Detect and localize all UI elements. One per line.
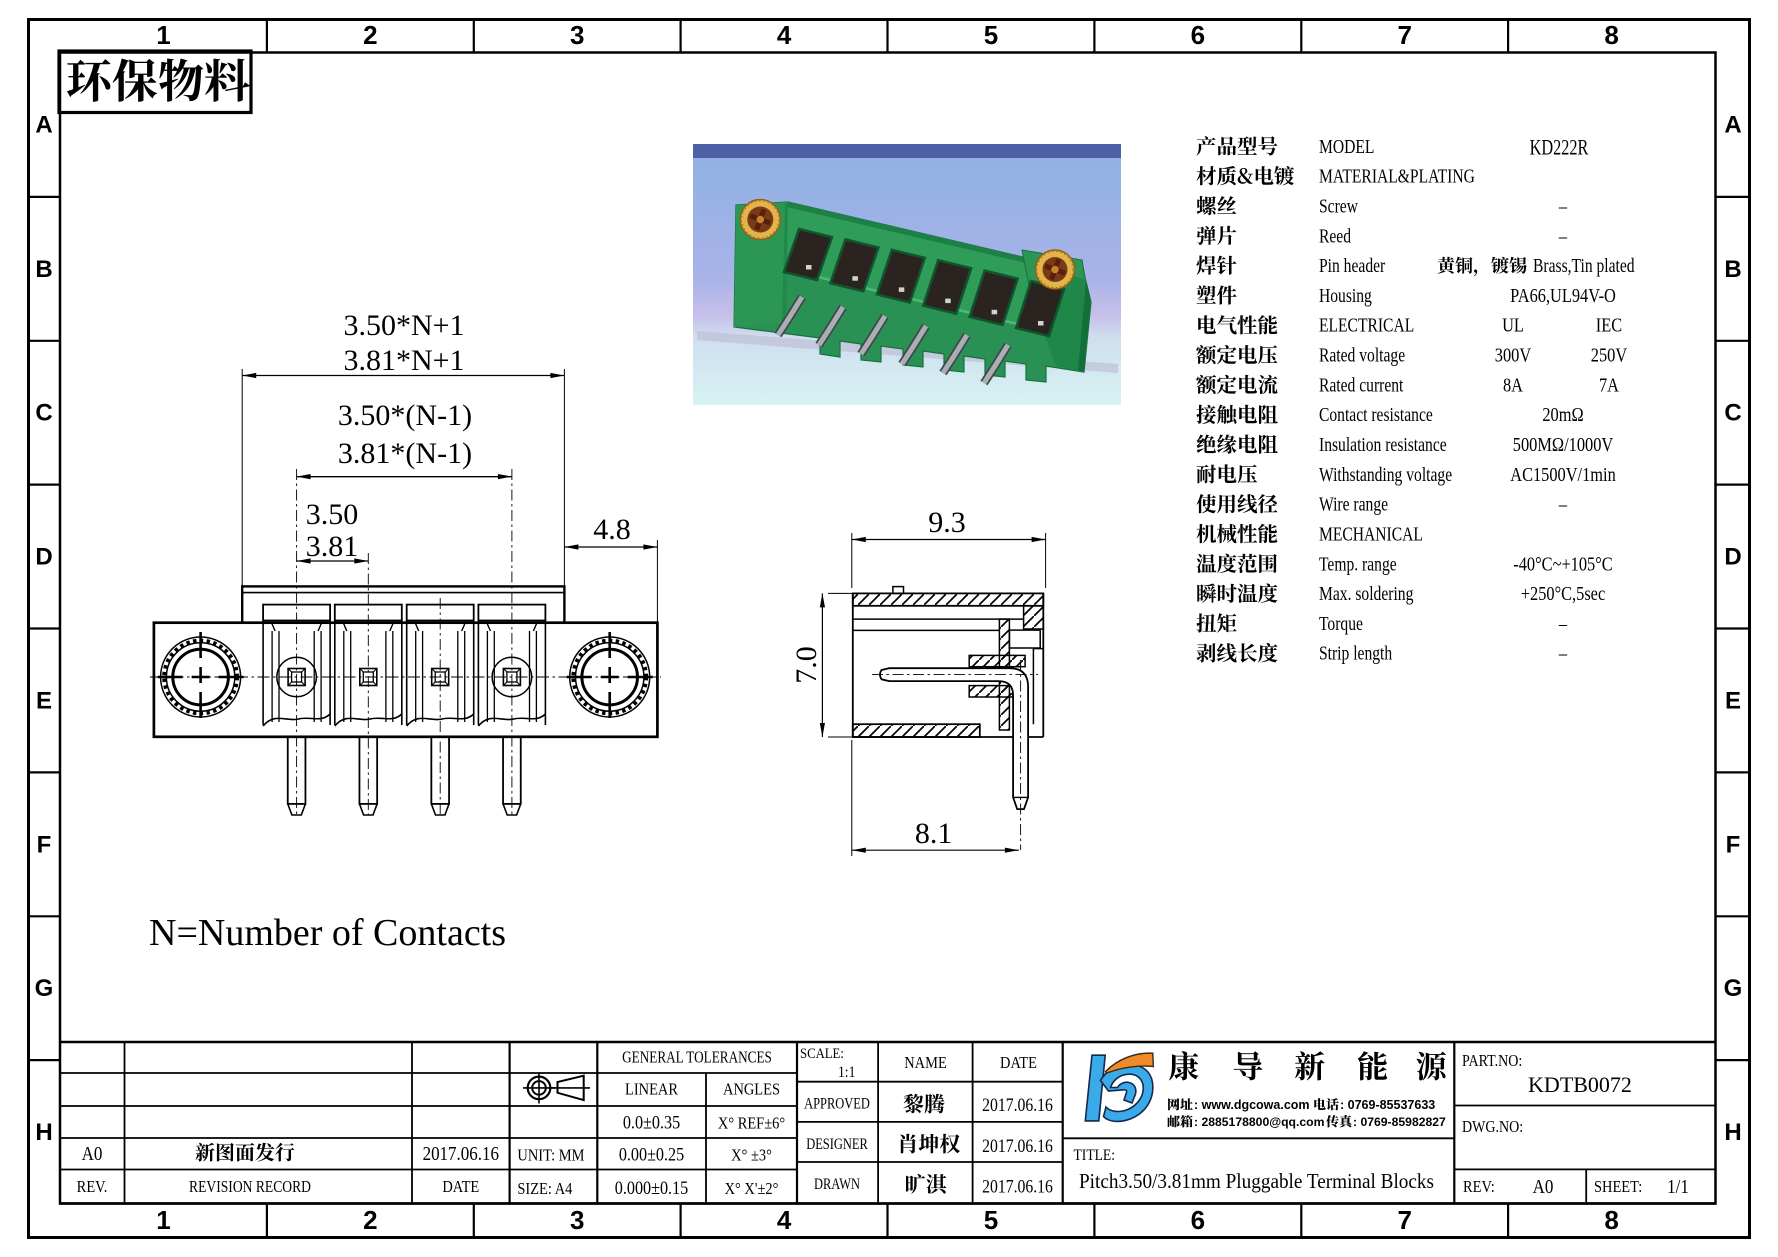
svg-text:C: C xyxy=(1724,400,1741,427)
svg-text:3.50*N+1: 3.50*N+1 xyxy=(343,309,464,342)
svg-text:0.00±0.25: 0.00±0.25 xyxy=(619,1143,685,1165)
svg-text:Rated current: Rated current xyxy=(1319,374,1403,396)
svg-text:+250°C,5sec: +250°C,5sec xyxy=(1521,583,1605,605)
svg-text:X° ±3°: X° ±3° xyxy=(731,1146,772,1164)
svg-text:–: – xyxy=(1558,195,1568,217)
svg-text:G: G xyxy=(1724,975,1743,1002)
svg-text:1/1: 1/1 xyxy=(1667,1176,1689,1199)
svg-text:IEC: IEC xyxy=(1596,314,1622,336)
svg-text:–: – xyxy=(1558,613,1568,635)
svg-text:A0: A0 xyxy=(82,1143,103,1166)
svg-text:: 2885178800@qq.com: : 2885178800@qq.com xyxy=(1194,1115,1325,1129)
svg-text:N=Number of Contacts: N=Number of Contacts xyxy=(149,912,506,954)
svg-text:Housing: Housing xyxy=(1319,284,1372,306)
svg-text:6: 6 xyxy=(1191,20,1205,50)
svg-text:H: H xyxy=(35,1119,52,1146)
svg-text:Max. soldering: Max. soldering xyxy=(1319,582,1414,604)
svg-text:2017.06.16: 2017.06.16 xyxy=(982,1176,1053,1196)
svg-text:9.3: 9.3 xyxy=(928,506,966,539)
svg-text:8A: 8A xyxy=(1503,374,1523,396)
svg-text:-40°C~+105°C: -40°C~+105°C xyxy=(1513,553,1612,575)
svg-text:D: D xyxy=(35,544,52,571)
svg-text:Pin header: Pin header xyxy=(1319,254,1385,276)
svg-text:–: – xyxy=(1558,493,1568,515)
svg-text:2017.06.16: 2017.06.16 xyxy=(982,1136,1053,1156)
svg-text:Screw: Screw xyxy=(1319,195,1358,217)
svg-text:Strip length: Strip length xyxy=(1319,642,1392,664)
svg-text:A: A xyxy=(35,112,52,139)
svg-text:UL: UL xyxy=(1502,314,1524,336)
svg-text:DESIGNER: DESIGNER xyxy=(806,1135,868,1153)
svg-text:REV.: REV. xyxy=(77,1178,108,1196)
svg-text:UNIT: MM: UNIT: MM xyxy=(517,1146,584,1164)
svg-text:7: 7 xyxy=(1397,1205,1411,1235)
svg-text:E: E xyxy=(1725,687,1741,714)
svg-text:: www.dgcowa.com: : www.dgcowa.com xyxy=(1194,1098,1310,1112)
svg-text:A: A xyxy=(1724,112,1741,139)
svg-text:3: 3 xyxy=(570,1205,584,1235)
svg-text:REV:: REV: xyxy=(1463,1178,1495,1196)
svg-text:DWG.NO:: DWG.NO: xyxy=(1462,1118,1523,1136)
svg-text:3.50*(N-1): 3.50*(N-1) xyxy=(338,399,472,432)
svg-text:KD222R: KD222R xyxy=(1530,136,1589,160)
svg-text:C: C xyxy=(35,400,52,427)
svg-text:Insulation resistance: Insulation resistance xyxy=(1319,433,1447,455)
svg-text:Brass,Tin plated: Brass,Tin plated xyxy=(1533,254,1635,276)
svg-text:300V: 300V xyxy=(1495,344,1531,366)
svg-text:Withstanding voltage: Withstanding voltage xyxy=(1319,463,1452,485)
svg-text:GENERAL TOLERANCES: GENERAL TOLERANCES xyxy=(622,1049,772,1067)
svg-text:3.81*N+1: 3.81*N+1 xyxy=(343,344,464,377)
svg-text:AC1500V/1min: AC1500V/1min xyxy=(1510,463,1616,485)
svg-text:B: B xyxy=(35,256,52,283)
svg-text:G: G xyxy=(35,975,54,1002)
svg-text:1:1: 1:1 xyxy=(838,1064,855,1081)
svg-text:ELECTRICAL: ELECTRICAL xyxy=(1319,314,1414,336)
svg-text:20mΩ: 20mΩ xyxy=(1542,404,1583,426)
svg-text:8: 8 xyxy=(1604,1205,1618,1235)
svg-text:3.50: 3.50 xyxy=(306,498,359,531)
svg-text:5: 5 xyxy=(984,20,998,50)
svg-text:4: 4 xyxy=(777,1205,792,1235)
svg-text:–: – xyxy=(1558,225,1568,247)
svg-text:6: 6 xyxy=(1191,1205,1205,1235)
svg-text:4.8: 4.8 xyxy=(593,513,631,546)
svg-text:PART.NO:: PART.NO: xyxy=(1462,1052,1522,1070)
svg-text:H: H xyxy=(1724,1119,1741,1146)
svg-text:D: D xyxy=(1724,544,1741,571)
svg-text:3: 3 xyxy=(570,20,584,50)
svg-text:PA66,UL94V-O: PA66,UL94V-O xyxy=(1510,285,1616,307)
svg-text:DATE: DATE xyxy=(442,1178,479,1196)
svg-text:: 0769-85537633: : 0769-85537633 xyxy=(1340,1098,1435,1112)
svg-text:MODEL: MODEL xyxy=(1319,135,1374,157)
svg-text:Wire range: Wire range xyxy=(1319,493,1388,515)
svg-text:REVISION RECORD: REVISION RECORD xyxy=(189,1178,311,1197)
svg-text:2017.06.16: 2017.06.16 xyxy=(982,1095,1053,1115)
svg-text:A0: A0 xyxy=(1533,1176,1554,1199)
svg-text:Rated voltage: Rated voltage xyxy=(1319,344,1405,366)
svg-text:SHEET:: SHEET: xyxy=(1594,1178,1642,1196)
svg-text:4: 4 xyxy=(777,20,792,50)
svg-text:1: 1 xyxy=(156,20,170,50)
svg-text:7A: 7A xyxy=(1599,374,1619,396)
svg-text:F: F xyxy=(37,831,52,858)
svg-text:SCALE:: SCALE: xyxy=(800,1046,844,1062)
svg-text:KDTB0072: KDTB0072 xyxy=(1528,1072,1632,1097)
svg-text:MATERIAL&PLATING: MATERIAL&PLATING xyxy=(1319,165,1475,187)
svg-text:MECHANICAL: MECHANICAL xyxy=(1319,523,1423,545)
svg-text:B: B xyxy=(1724,256,1741,283)
svg-text:APPROVED: APPROVED xyxy=(804,1095,870,1113)
svg-text:SIZE: A4: SIZE: A4 xyxy=(517,1180,572,1198)
svg-text:X° REF±6°: X° REF±6° xyxy=(718,1114,785,1132)
svg-text:2017.06.16: 2017.06.16 xyxy=(423,1143,499,1166)
svg-text:ANGLES: ANGLES xyxy=(723,1080,780,1098)
svg-text:2: 2 xyxy=(363,1205,377,1235)
svg-text:Temp. range: Temp. range xyxy=(1319,553,1397,575)
svg-text:3.81: 3.81 xyxy=(306,530,359,563)
svg-text:Contact resistance: Contact resistance xyxy=(1319,404,1433,426)
svg-text:7.0: 7.0 xyxy=(790,646,823,684)
svg-text:0.000±0.15: 0.000±0.15 xyxy=(615,1177,689,1199)
svg-text:1: 1 xyxy=(156,1205,170,1235)
svg-text:8: 8 xyxy=(1604,20,1618,50)
svg-text:Reed: Reed xyxy=(1319,225,1351,247)
svg-text:LINEAR: LINEAR xyxy=(625,1080,678,1098)
svg-text:TITLE:: TITLE: xyxy=(1074,1147,1115,1164)
svg-text:Pitch3.50/3.81mm Pluggable Ter: Pitch3.50/3.81mm Pluggable Terminal Bloc… xyxy=(1079,1169,1434,1193)
svg-text:X° X'±2°: X° X'±2° xyxy=(725,1180,779,1198)
svg-text:250V: 250V xyxy=(1591,344,1627,366)
svg-text:–: – xyxy=(1558,642,1568,664)
svg-text:8.1: 8.1 xyxy=(915,817,953,850)
svg-text:500MΩ/1000V: 500MΩ/1000V xyxy=(1513,434,1613,456)
svg-text:NAME: NAME xyxy=(904,1054,947,1072)
svg-text:0.0±0.35: 0.0±0.35 xyxy=(623,1111,680,1133)
svg-text:F: F xyxy=(1726,831,1741,858)
svg-text:3.81*(N-1): 3.81*(N-1) xyxy=(338,437,472,470)
svg-text:: 0769-85982827: : 0769-85982827 xyxy=(1353,1115,1446,1129)
svg-text:DATE: DATE xyxy=(1000,1054,1037,1072)
svg-text:DRAWN: DRAWN xyxy=(814,1176,861,1194)
svg-text:Torque: Torque xyxy=(1319,612,1363,634)
svg-text:2: 2 xyxy=(363,20,377,50)
svg-text:7: 7 xyxy=(1397,20,1411,50)
svg-text:5: 5 xyxy=(984,1205,998,1235)
svg-text:E: E xyxy=(36,687,52,714)
